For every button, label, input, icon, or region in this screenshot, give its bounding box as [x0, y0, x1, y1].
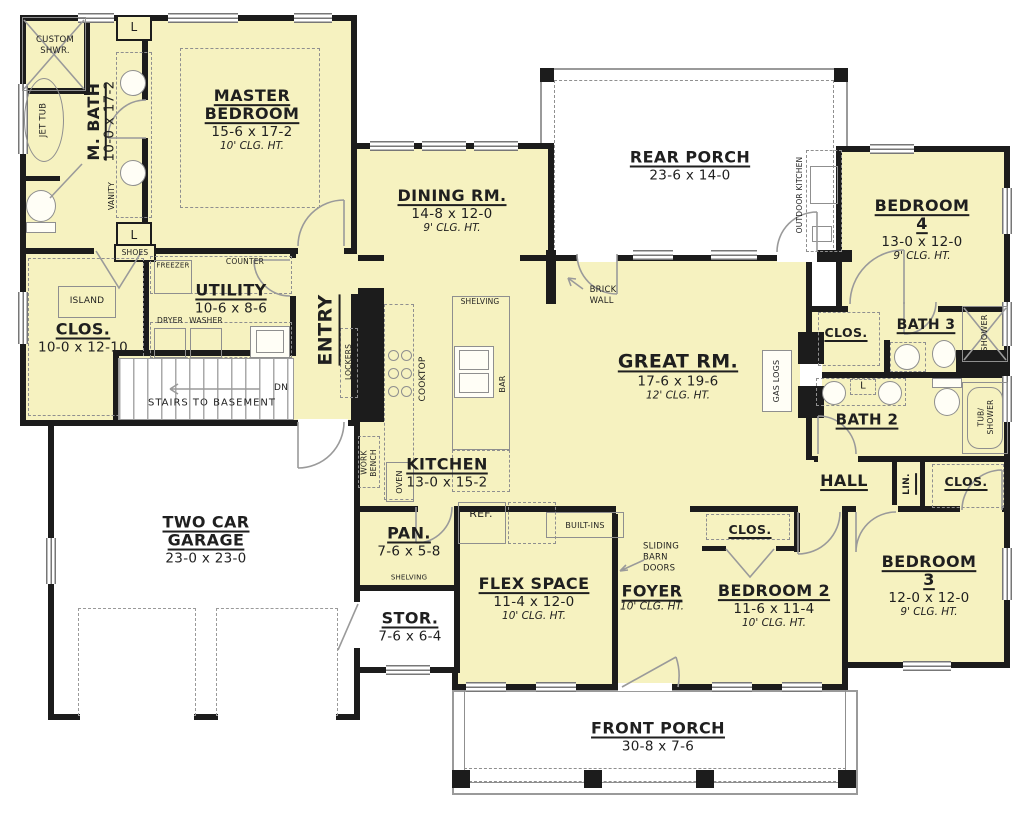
window — [18, 292, 28, 344]
label-bath3: BATH 3 — [897, 318, 956, 334]
door-gap — [856, 505, 898, 513]
ann-lockers: LOCKERS — [344, 344, 354, 380]
front-door-gap — [618, 683, 672, 691]
ann-brick-wall: BRICK WALL — [590, 285, 617, 307]
window — [903, 661, 951, 671]
label-rear-porch: REAR PORCH 23-6 x 14-0 — [630, 148, 750, 183]
window — [782, 682, 822, 692]
toilet-tank — [932, 378, 962, 388]
ann-stairs: STAIRS TO BASEMENT — [148, 397, 276, 410]
rear-porch-post — [540, 68, 554, 82]
door-gap — [353, 602, 361, 648]
label-kitchen: KITCHEN 13-0 x 15-2 — [406, 455, 488, 490]
garage-bay — [216, 608, 338, 716]
wall-lockers — [356, 288, 384, 422]
ann-freezer: FREEZER — [156, 261, 189, 270]
cooktop-burner — [401, 386, 412, 397]
ann-built-ins: BUILT-INS — [565, 521, 604, 531]
label-master-bedroom: MASTER BEDROOM 15-6 x 17-2 10' CLG. HT. — [205, 87, 300, 153]
opening-foyer — [616, 505, 690, 514]
toilet-bowl — [932, 340, 956, 368]
utility-sink-basin — [256, 330, 284, 353]
door-gap — [883, 310, 891, 340]
ann-cooktop: COOKTOP — [418, 356, 430, 401]
sink — [120, 160, 146, 186]
floor-plan: MASTER BEDROOM 15-6 x 17-2 10' CLG. HT. … — [0, 0, 1024, 820]
ann-washer: WASHER — [189, 316, 223, 326]
window — [422, 141, 466, 151]
outdoor-sink — [812, 226, 832, 242]
cooktop-burner — [388, 386, 399, 397]
sink — [822, 381, 846, 405]
window — [1002, 548, 1012, 600]
window — [46, 538, 56, 584]
door-gap — [818, 455, 858, 463]
ann-vanity: VANITY — [107, 182, 117, 210]
ann-outdoor-kitchen: OUTDOOR KITCHEN — [795, 157, 805, 234]
window — [712, 682, 752, 692]
label-garage: TWO CAR GARAGE 23-0 x 23-0 — [163, 514, 250, 567]
window — [294, 13, 332, 23]
label-closet-master: CLOS. 10-0 x 12-10 — [38, 320, 128, 355]
door-gap — [577, 249, 617, 262]
opening-entry — [350, 254, 358, 294]
island-sink-basin — [459, 350, 489, 370]
label-m-bath: M. BATH 10-0 x 17-2 — [85, 80, 117, 163]
ann-oven: OVEN — [395, 470, 405, 493]
ann-gas-logs: GAS LOGS — [772, 360, 782, 403]
ann-dn: DN — [274, 383, 288, 395]
label-bedroom2: BEDROOM 2 11-6 x 11-4 10' CLG. HT. — [718, 582, 830, 630]
door-gap — [726, 545, 776, 552]
label-bath2: BATH 2 — [836, 412, 899, 429]
window — [370, 141, 414, 151]
ann-island: ISLAND — [70, 296, 105, 308]
cased-opening — [384, 252, 520, 263]
cooktop-burner — [388, 368, 399, 379]
door-gap — [298, 419, 348, 427]
garage-door-opening — [80, 713, 194, 721]
window — [1002, 188, 1012, 234]
label-lin: LIN. — [903, 473, 913, 495]
stairs-to-basement — [118, 358, 294, 420]
label-bedroom4: BEDROOM 4 13-0 x 12-0 9' CLG. HT. — [871, 197, 973, 263]
dryer — [154, 328, 186, 358]
sink — [894, 344, 920, 370]
label-pantry: PAN. 7-6 x 5-8 — [377, 524, 440, 559]
door-gap — [418, 505, 454, 514]
ann-counter: COUNTER — [226, 257, 264, 267]
opening-hall — [805, 460, 814, 506]
label-front-porch: FRONT PORCH 30-8 x 7-6 — [591, 719, 725, 754]
ann-barn-doors: SLIDING BARN DOORS — [643, 541, 679, 574]
wall-toilet — [20, 176, 60, 181]
door-gap — [904, 305, 938, 314]
garage-door-opening — [218, 713, 336, 721]
toilet-bowl — [26, 190, 56, 222]
garage-bay — [78, 608, 196, 716]
label-clos-bd2: CLOS. — [728, 523, 771, 537]
window — [474, 141, 518, 151]
window — [466, 682, 506, 692]
window — [168, 13, 238, 23]
front-porch-column — [452, 770, 470, 788]
ann-shelving-pantry: SHELVING — [391, 573, 427, 582]
label-bedroom3: BEDROOM 3 12-0 x 12-0 9' CLG. HT. — [882, 553, 977, 619]
window — [711, 250, 757, 260]
label-storage: STOR. 7-6 x 6-4 — [378, 609, 441, 644]
front-porch-column — [584, 770, 602, 788]
outdoor-grill — [810, 166, 838, 204]
ann-jet-tub: JET TUB — [38, 103, 49, 137]
ann-tub-shower: TUB/ SHOWER — [976, 400, 996, 435]
label-dining: DINING RM. 14-8 x 12-0 9' CLG. HT. — [398, 187, 507, 235]
label-clos-bath3: CLOS. — [824, 326, 867, 340]
ann-custom-shwr: CUSTOM SHWR. — [36, 35, 74, 57]
sink — [878, 381, 902, 405]
wall-lin — [920, 462, 925, 512]
ann-bar: BAR — [498, 375, 508, 392]
rear-porch-post — [834, 68, 848, 82]
label-flex: FLEX SPACE 11-4 x 12-0 10' CLG. HT. — [479, 575, 590, 623]
door-gap — [298, 247, 344, 256]
island-sink-basin — [459, 373, 489, 393]
front-porch-rail-dashes — [464, 768, 846, 782]
cooktop-burner — [401, 350, 412, 361]
washer — [190, 328, 222, 358]
front-porch-column — [838, 770, 856, 788]
sink — [120, 70, 146, 96]
label-great-room: GREAT RM. 17-6 x 19-6 12' CLG. HT. — [618, 351, 738, 402]
front-porch-column — [696, 770, 714, 788]
cooktop-burner — [401, 368, 412, 379]
label-foyer: FOYER 10' CLG. HT. — [620, 583, 684, 614]
window — [633, 250, 673, 260]
ann-shoes: SHOES — [122, 248, 149, 258]
label-clos-hall: CLOS. — [944, 475, 987, 489]
label-utility: UTILITY 10-6 x 8-6 — [195, 281, 267, 316]
door-gap — [798, 505, 842, 513]
ann-linen-l: L — [131, 20, 138, 36]
ann-work-bench: WORK BENCH — [359, 449, 379, 476]
toilet-tank — [26, 222, 56, 233]
label-hall: HALL — [820, 472, 868, 490]
label-entry: ENTRY — [316, 294, 337, 365]
ann-linen-l: L — [131, 228, 138, 244]
ann-shower-bath3: SHOWER — [980, 314, 990, 351]
window — [386, 665, 430, 675]
ann-dryer: DRYER — [157, 316, 183, 326]
ann-ref: REF. — [469, 507, 492, 521]
window — [870, 144, 914, 154]
window — [536, 682, 576, 692]
ann-shelving-island: SHELVING — [461, 297, 500, 307]
cooktop-burner — [388, 350, 399, 361]
ann-linen-l: L — [860, 380, 866, 393]
wall-brick — [546, 250, 556, 304]
toilet-bowl — [934, 388, 960, 416]
